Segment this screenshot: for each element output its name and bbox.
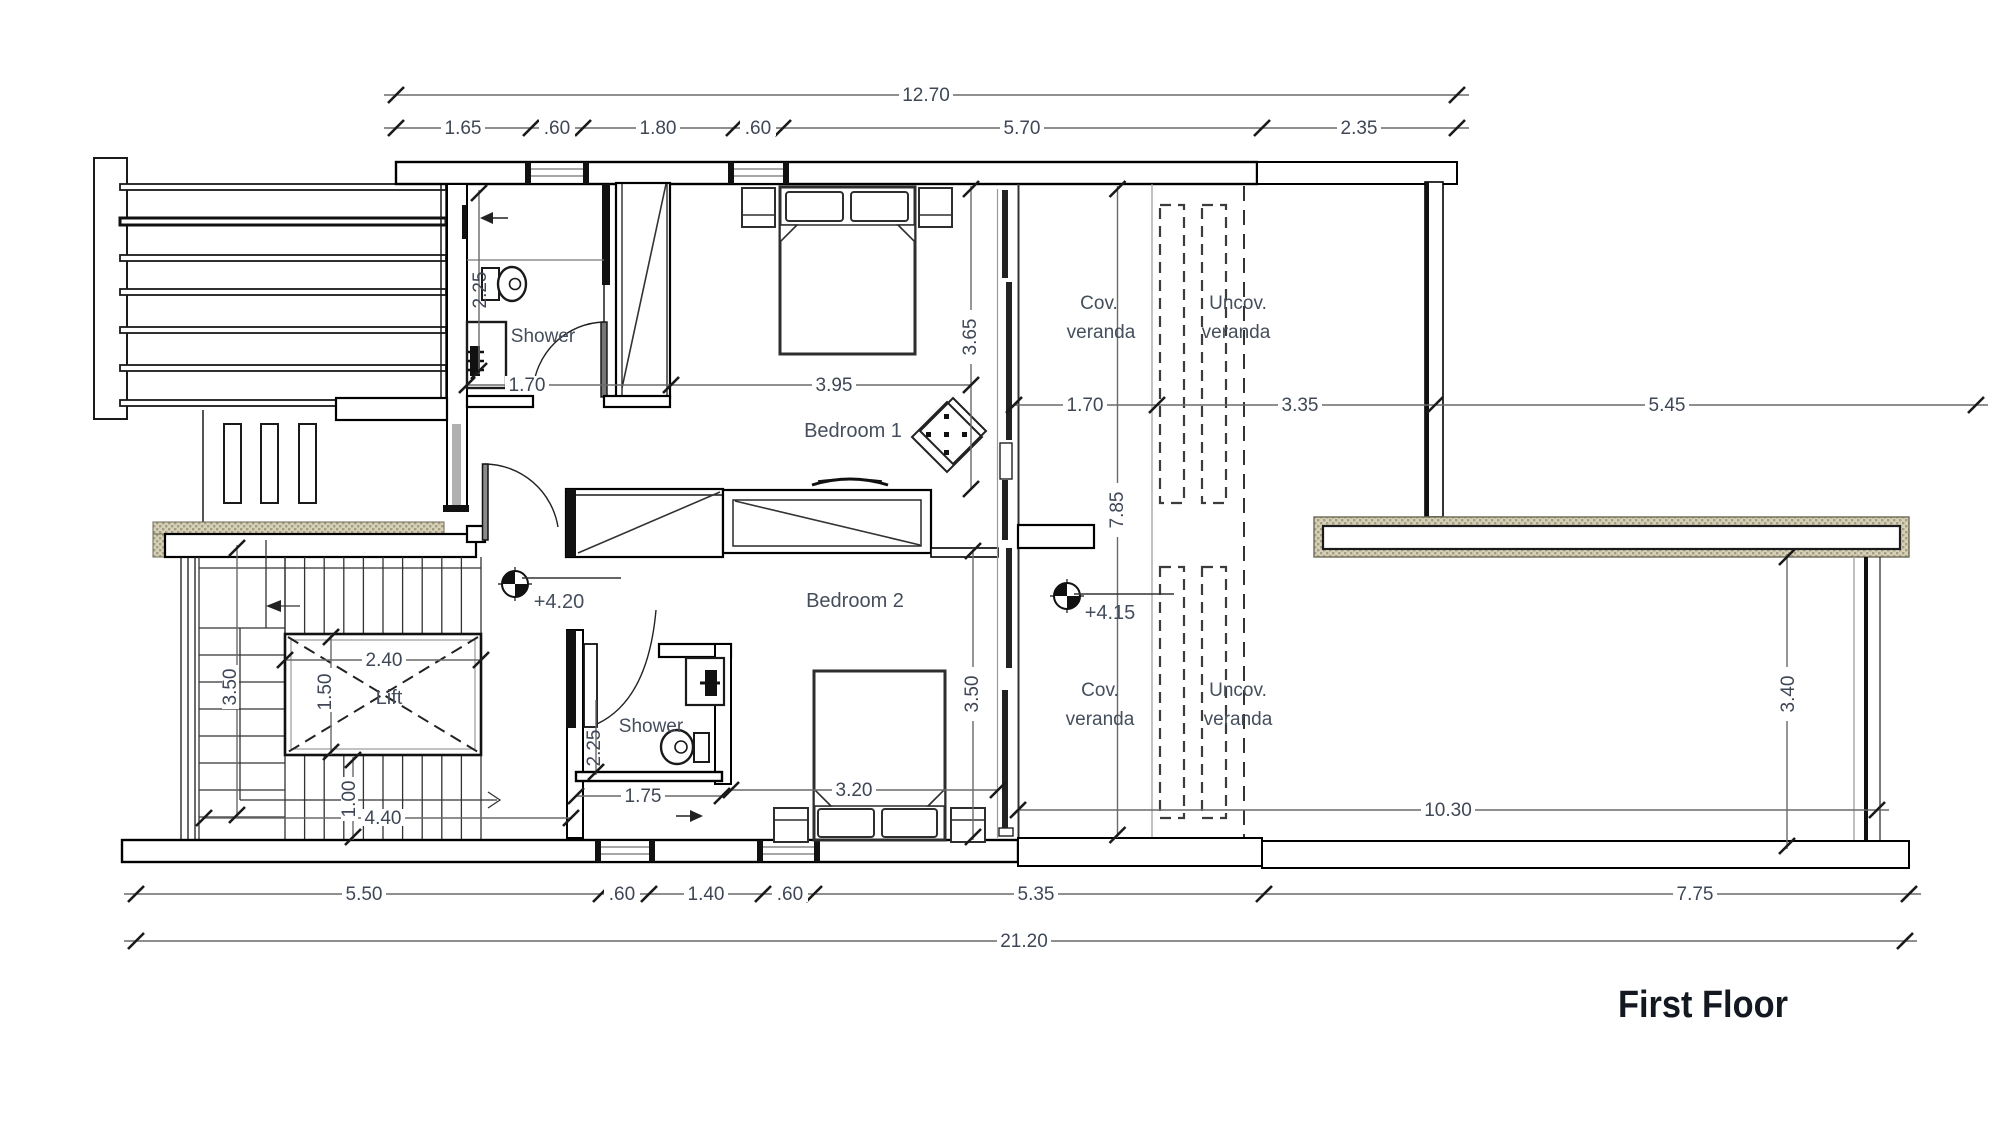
- svg-text:1.75: 1.75: [625, 786, 662, 807]
- svg-text:Lift: Lift: [376, 687, 403, 709]
- svg-text:Shower: Shower: [511, 326, 576, 347]
- svg-text:Shower: Shower: [619, 716, 684, 737]
- svg-text:veranda: veranda: [1204, 709, 1273, 730]
- svg-text:5.35: 5.35: [1018, 884, 1055, 905]
- svg-text:Cov.: Cov.: [1080, 293, 1118, 314]
- svg-text:5.70: 5.70: [1004, 118, 1041, 139]
- svg-text:.60: .60: [544, 118, 570, 139]
- svg-text:Bedroom 1: Bedroom 1: [804, 420, 902, 442]
- svg-text:3.50: 3.50: [220, 669, 241, 706]
- svg-text:1.40: 1.40: [688, 884, 725, 905]
- svg-text:1.80: 1.80: [640, 118, 677, 139]
- svg-text:.60: .60: [777, 884, 803, 905]
- svg-text:veranda: veranda: [1066, 709, 1135, 730]
- svg-text:2.35: 2.35: [1341, 118, 1378, 139]
- svg-text:3.65: 3.65: [960, 319, 981, 356]
- svg-text:3.20: 3.20: [836, 780, 873, 801]
- svg-text:veranda: veranda: [1067, 322, 1136, 343]
- svg-text:12.70: 12.70: [902, 85, 950, 106]
- svg-text:3.40: 3.40: [1778, 676, 1799, 713]
- svg-text:1.65: 1.65: [445, 118, 482, 139]
- svg-text:1.00: 1.00: [339, 781, 360, 818]
- svg-text:2.25: 2.25: [584, 730, 605, 767]
- svg-text:4.40: 4.40: [365, 808, 402, 829]
- svg-text:5.45: 5.45: [1649, 395, 1686, 416]
- svg-text:.60: .60: [745, 118, 771, 139]
- svg-text:10.30: 10.30: [1424, 800, 1472, 821]
- svg-text:3.35: 3.35: [1282, 395, 1319, 416]
- svg-text:+4.20: +4.20: [534, 591, 585, 613]
- svg-text:5.50: 5.50: [346, 884, 383, 905]
- svg-text:21.20: 21.20: [1000, 931, 1048, 952]
- svg-text:2.40: 2.40: [366, 650, 403, 671]
- svg-text:First Floor: First Floor: [1618, 984, 1788, 1026]
- svg-text:1.70: 1.70: [1067, 395, 1104, 416]
- svg-text:3.95: 3.95: [816, 375, 853, 396]
- svg-text:Bedroom 2: Bedroom 2: [806, 590, 904, 612]
- svg-text:Uncov.: Uncov.: [1209, 293, 1267, 314]
- svg-text:7.85: 7.85: [1107, 492, 1128, 529]
- svg-text:veranda: veranda: [1202, 322, 1271, 343]
- svg-text:+4.15: +4.15: [1085, 602, 1136, 624]
- svg-text:1.70: 1.70: [509, 375, 546, 396]
- svg-text:Cov.: Cov.: [1081, 680, 1119, 701]
- svg-text:.60: .60: [609, 884, 635, 905]
- svg-text:2.25: 2.25: [470, 272, 491, 309]
- svg-text:3.50: 3.50: [962, 676, 983, 713]
- svg-text:1.50: 1.50: [315, 674, 336, 711]
- svg-text:7.75: 7.75: [1677, 884, 1714, 905]
- svg-text:Uncov.: Uncov.: [1209, 680, 1267, 701]
